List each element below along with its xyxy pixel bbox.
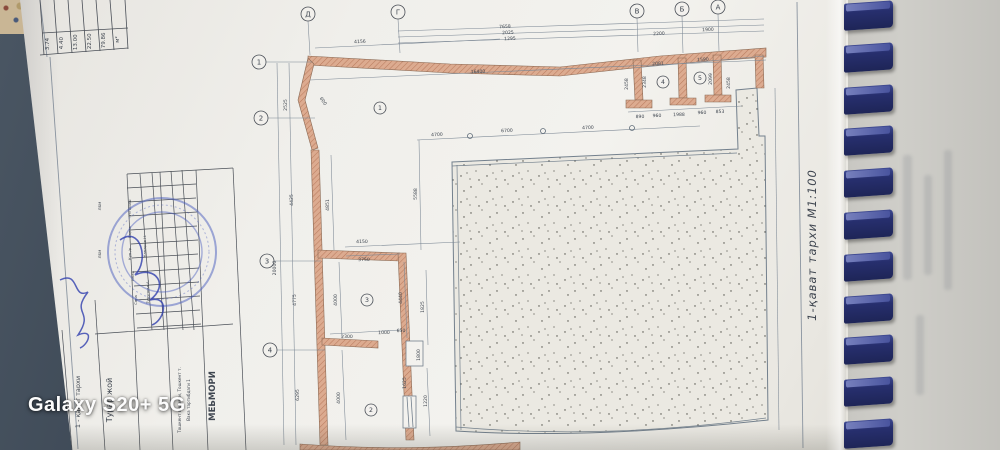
grid-axis-bubbles-left: 1234 (252, 55, 277, 357)
grid-axis-label: 1 (257, 59, 261, 67)
dimension-label: 3750 (358, 257, 370, 263)
grid-axis-label: 4 (268, 347, 273, 355)
stamp-cell-text: ЛБМ (97, 250, 102, 259)
dimension-label: 2525 (283, 99, 289, 111)
room-number-label: 1 (378, 105, 382, 112)
dimension-label: 4150 (356, 239, 368, 245)
comb-tooth (844, 42, 893, 72)
comb-tooth (844, 0, 893, 30)
dimension-label: 2200 (653, 31, 665, 37)
room-number-label: 4 (661, 79, 665, 86)
stamp-cell-text: ЛБМ (97, 202, 102, 211)
dimension-label: 1988 (673, 112, 685, 118)
grid-axis-label: А (716, 4, 721, 12)
dimension-label: 20000 (272, 261, 278, 276)
dimension-label: 2300 (341, 334, 353, 340)
dimension-label: 4425 (289, 194, 295, 206)
title-block-text: МЕЬМОРИ (208, 371, 218, 421)
dimension-label: 650 (397, 328, 406, 334)
dimension-label: 890 (636, 114, 645, 120)
dimension-label: 7658 (499, 24, 511, 30)
dimension-label: 4700 (431, 132, 443, 138)
room-number-label: 3 (365, 297, 369, 304)
comb-tooth (844, 251, 893, 281)
comb-tooth (844, 209, 893, 239)
comb-tooth (844, 126, 893, 156)
grid-axis-label: Г (396, 9, 400, 17)
dimension-label: 853 (716, 109, 725, 115)
grid-axis-bubbles-top: ДГВБА (301, 0, 725, 21)
dimension-label: 600 (318, 96, 328, 107)
stamp-seal (60, 198, 216, 348)
courtyard-area (452, 88, 768, 434)
dimension-label: 1590 (697, 57, 709, 63)
grid-axis-label: Д (305, 11, 311, 19)
dimension-label: 2458 (624, 78, 630, 90)
area-value: 79.86 (101, 32, 107, 48)
room-number-label: 5 (698, 75, 702, 82)
area-table (40, 0, 128, 55)
title-block-text: Вака тартибдаги 1 (186, 379, 191, 421)
galaxy-watermark: Galaxy S20+ 5G (28, 394, 186, 417)
grid-axis-label: 2 (259, 115, 263, 123)
dimension-label: 1900 (702, 27, 714, 33)
binder-photo: 3.744.4013.0022.5079.86м² МЕЬМОРИВака та… (0, 0, 1000, 450)
comb-tooth (844, 376, 893, 406)
column-markers (468, 126, 635, 139)
dimension-label: 1220 (423, 395, 429, 407)
grid-axis-label: Б (680, 6, 685, 14)
dimension-label: 16400 (471, 69, 486, 76)
dimension-label: 1625 (402, 377, 408, 389)
dimension-label: 1800 (416, 349, 422, 361)
sheet-title: 1-қават тархи М1:100 (805, 169, 819, 321)
stamp-cell-text: Турунова А. (145, 280, 150, 305)
dimension-label: 2025 (502, 30, 514, 36)
dimension-label: 1295 (504, 36, 516, 42)
dimension-label: 4700 (582, 125, 594, 131)
area-value: м² (114, 36, 121, 42)
area-value: 13.00 (73, 34, 79, 50)
comb-tooth (844, 84, 893, 114)
comb-tooth (844, 293, 893, 323)
dimension-label: 2458 (726, 77, 732, 89)
area-value: 22.50 (87, 33, 93, 49)
dimension-label: 960 (698, 110, 707, 116)
grid-axis-label: В (635, 8, 640, 16)
area-value: 4.40 (59, 36, 65, 49)
dimension-label: 2099 (708, 73, 714, 85)
dimension-label: 2081 (652, 61, 664, 67)
dimension-label: 4851 (325, 199, 331, 211)
dimension-label: 4775 (292, 294, 298, 306)
room-number-label: 2 (369, 407, 373, 414)
comb-tooth (844, 167, 893, 197)
dimension-label: 4440 (398, 292, 404, 304)
grid-axis-label: 3 (265, 258, 269, 266)
dimension-label: 6700 (501, 128, 513, 134)
page-edge-highlight (826, 0, 846, 450)
dimension-label: 6295 (295, 389, 301, 401)
dimension-label: 1825 (420, 301, 426, 313)
comb-tooth (844, 418, 893, 448)
stamp-cell-text: Кув./р (127, 247, 132, 260)
dimension-label: 4000 (336, 392, 342, 404)
dimension-label: 4156 (354, 39, 366, 46)
comb-tooth (844, 335, 893, 365)
dimension-label: 2348 (642, 76, 648, 88)
dimension-label: 960 (653, 113, 662, 119)
dimension-label: 4000 (333, 294, 339, 306)
dimension-label: 5588 (413, 188, 419, 200)
area-value: 3.74 (45, 37, 51, 50)
dimension-label: 1000 (378, 330, 390, 336)
